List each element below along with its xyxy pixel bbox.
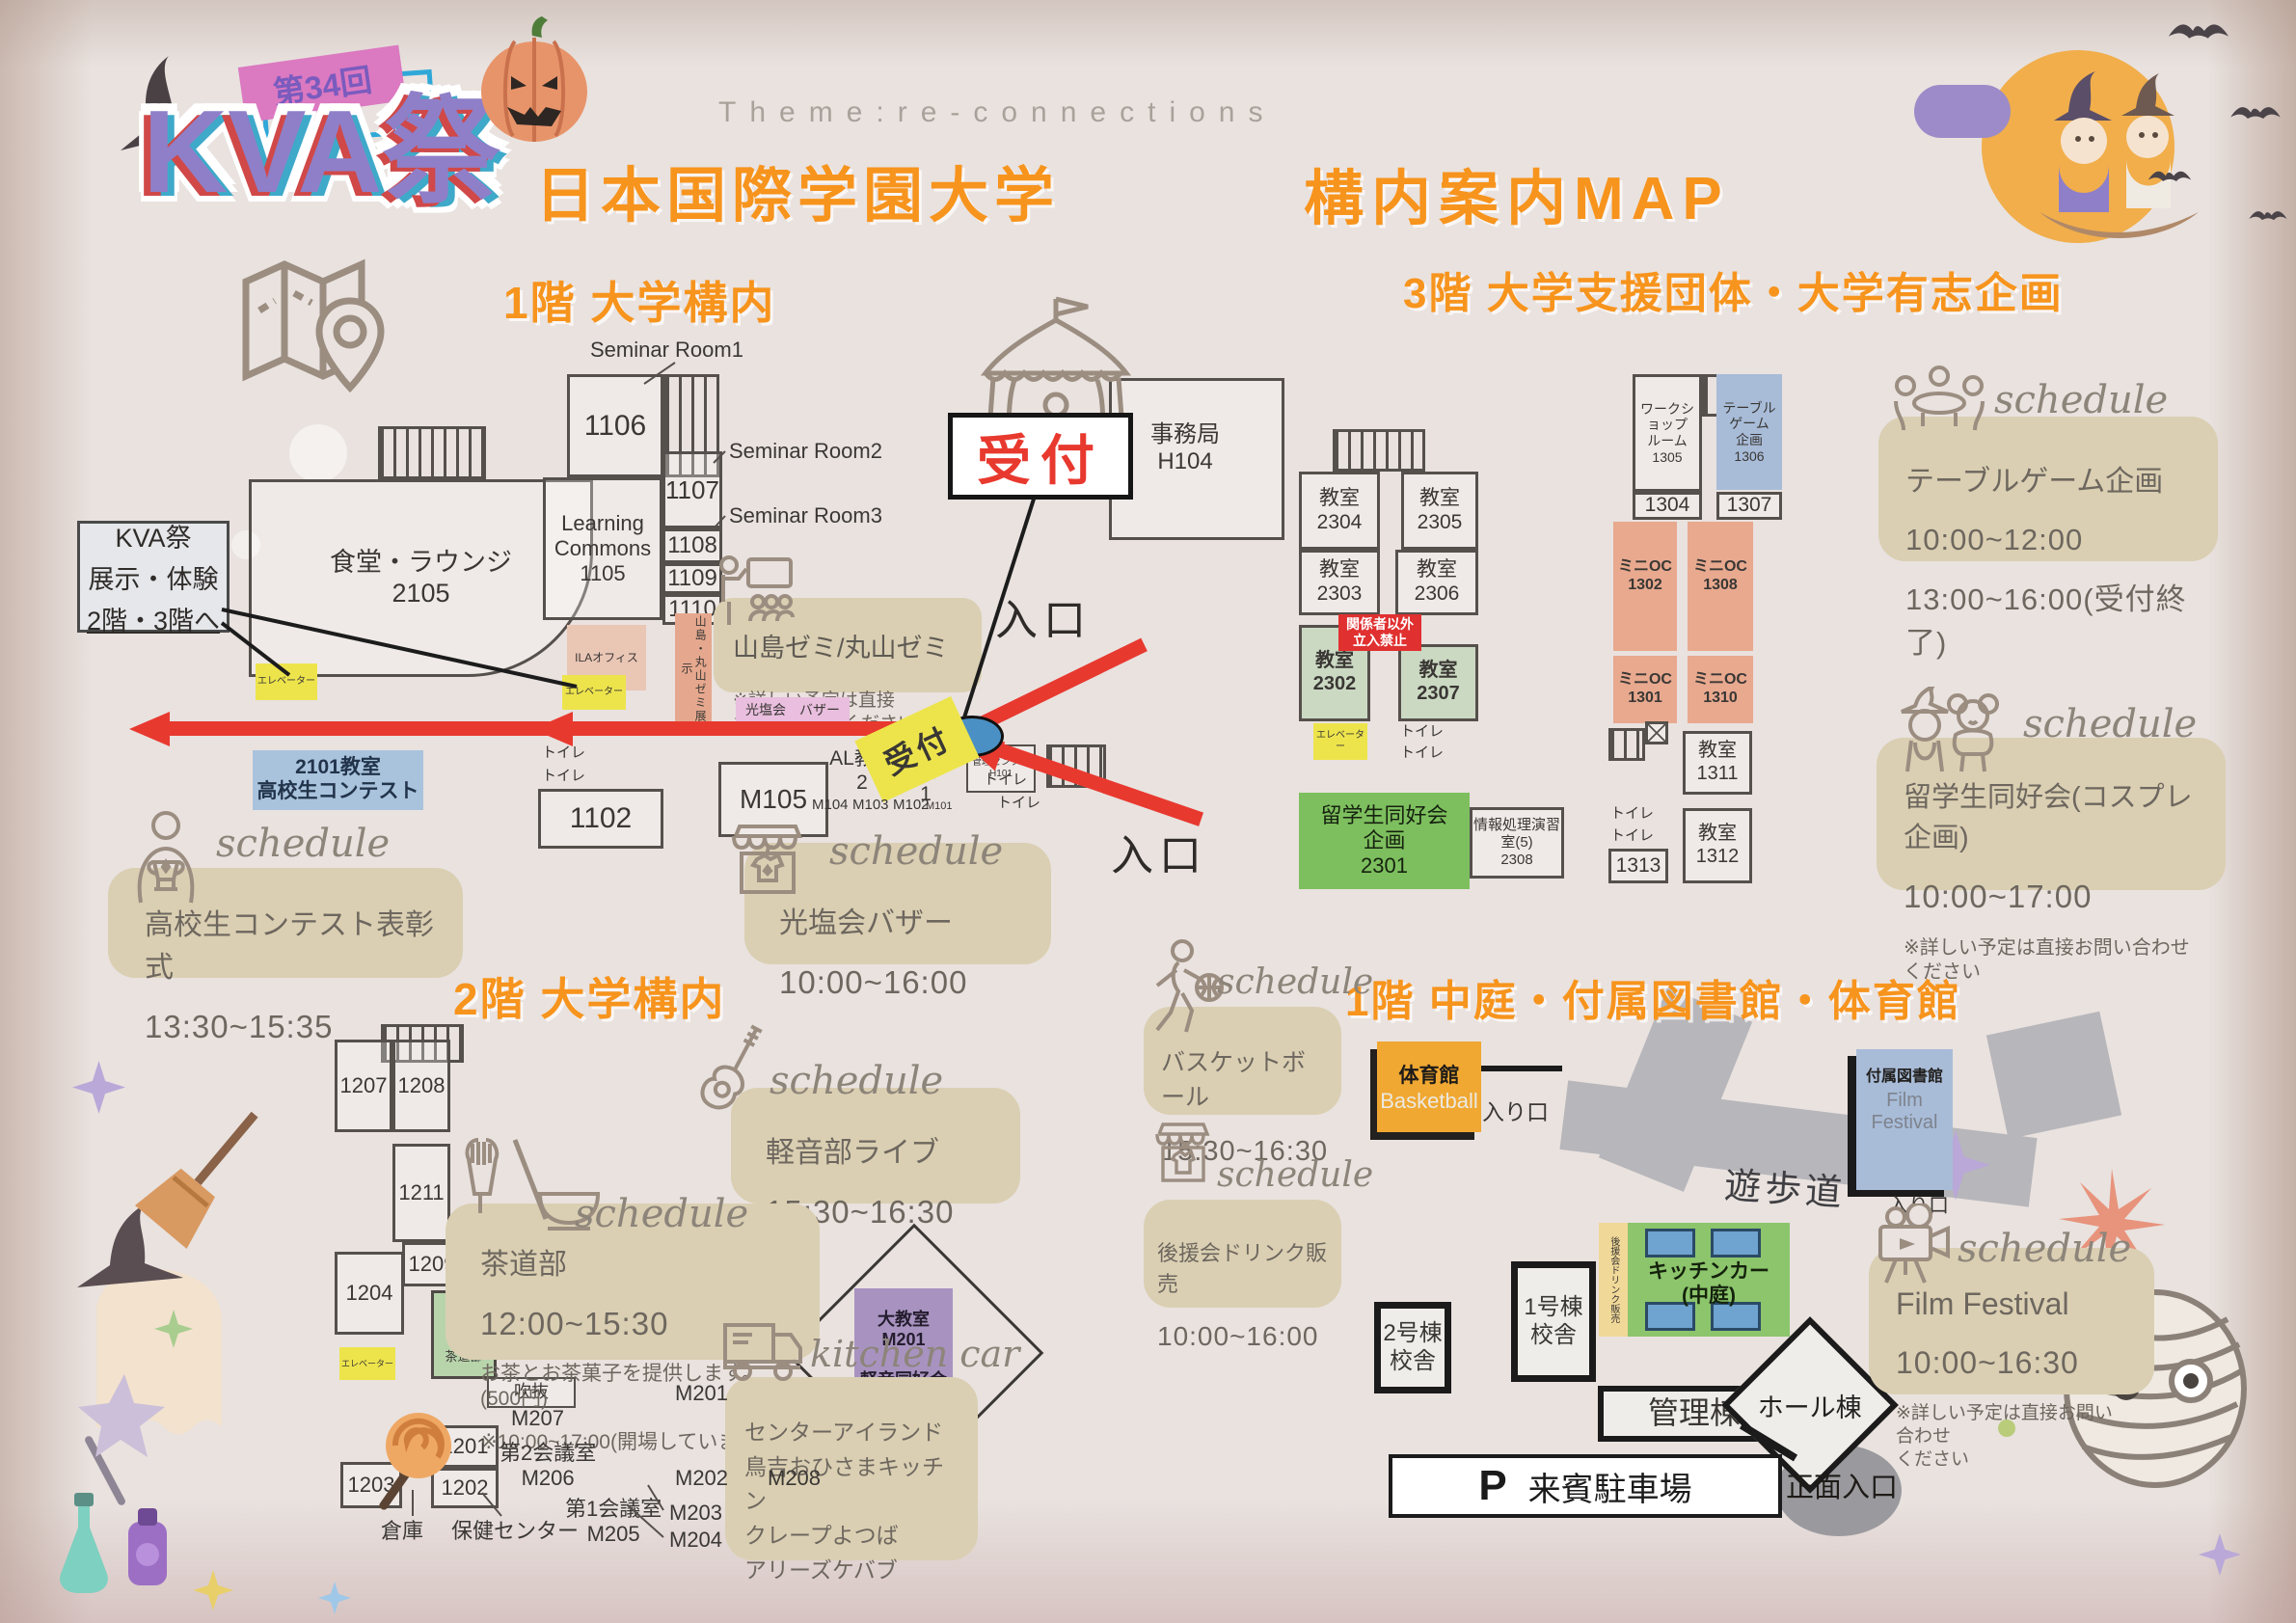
no-entry-sign: 関係者以外 立入禁止	[1338, 614, 1421, 651]
room-m208-label: M208	[768, 1466, 821, 1491]
promenade-path	[1986, 1012, 2121, 1140]
elevator-box: エレベーター	[562, 675, 626, 710]
floor1-title: 1階 大学構内	[503, 268, 775, 332]
parking-label: 来賓駐車場	[1528, 1463, 1692, 1510]
stairwell	[1333, 429, 1425, 472]
room-1211: 1211	[392, 1144, 450, 1242]
schedule-word: schedule	[829, 829, 1003, 874]
schedule-time: 10:00~16:00	[1157, 1321, 1328, 1352]
gym-label-en: Basketball	[1380, 1089, 1478, 1114]
schedule-word: schedule	[575, 1192, 748, 1236]
callout-line: KVA祭	[115, 517, 191, 555]
kitchen-table	[1711, 1229, 1761, 1258]
room-mini-oc-1308: ミニOC 1308	[1688, 522, 1753, 651]
room-ryugaku-2301: 留学生同好会 企画 2301	[1299, 793, 1470, 889]
room-workshop-1305: ワークショップ ルーム 1305	[1633, 374, 1702, 492]
schedule-title: Film Festival	[1896, 1286, 2127, 1322]
campus-map-title: 構内案内MAP	[1304, 149, 1730, 236]
schedule-title: 軽音部ライブ	[766, 1128, 993, 1171]
souko-label: 倉庫	[381, 1519, 423, 1544]
room-mini-oc-1310: ミニOC 1310	[1688, 656, 1753, 723]
room-1312: 教室 1312	[1683, 808, 1752, 883]
hoken-label: 保健センター	[451, 1519, 579, 1544]
library-label: 付属図書館	[1866, 1063, 1943, 1086]
front-entrance-label: 正面入口	[1786, 1472, 1898, 1505]
callout-line: 展示・体験	[89, 558, 219, 596]
zemi-note-title: 山島ゼミ/丸山ゼミ	[733, 627, 962, 664]
toilet-label: トイレ	[1610, 805, 1654, 823]
schedule-time: 10:00~16:30	[1896, 1345, 2127, 1381]
room-1102: 1102	[538, 789, 663, 849]
room-learning-commons: Learning Commons 1105	[543, 477, 662, 620]
schedule-time: 13:00~16:00(受付終了)	[1905, 575, 2191, 662]
room-m202-label: M202	[675, 1466, 728, 1491]
building1-box: 1号棟 校舎	[1511, 1261, 1596, 1382]
schedule-time: 10:00~17:00	[1904, 879, 2199, 915]
parking-box: P 来賓駐車場	[1389, 1454, 1782, 1518]
schedule-note: ※詳しい予定は直接お問い合わせ ください	[1896, 1402, 2127, 1471]
schedule-card-kitchen-car: センターアイランド 鳥吉おひさまキッチン クレープよつば アリーズケバブ	[725, 1377, 978, 1560]
parking-p: P	[1478, 1462, 1506, 1510]
floor3-title: 3階 大学支援団体・大学有志企画	[1403, 258, 2064, 320]
room-m203-label: M203	[669, 1501, 722, 1526]
route-arrow-diagonal	[975, 638, 1148, 733]
bazaar-stall-icon	[728, 815, 807, 900]
schedule-card-tablegame: テーブルゲーム企画 10:00~12:00 13:00~16:00(受付終了)	[1878, 417, 2218, 561]
entrance-label: 入り口	[1482, 1099, 1549, 1126]
campus-map-icon	[227, 243, 415, 436]
bat-icon	[2228, 96, 2283, 125]
star-decoration	[318, 1582, 351, 1614]
room-2304: 教室 2304	[1299, 472, 1380, 550]
room-2307: 教室 2307	[1398, 644, 1478, 721]
drink-sale-strip: 後援会ドリンク販売	[1599, 1223, 1628, 1337]
cosplay-icon	[1888, 687, 2013, 773]
room-m102-label: M102	[893, 797, 930, 814]
room-1204: 1204	[335, 1252, 404, 1335]
drink-stall-icon	[1153, 1117, 1213, 1196]
university-title: 日本国際学園大学	[535, 147, 1060, 233]
kva-exhibit-callout: KVA祭 展示・体験 2階・3階へ	[77, 521, 230, 633]
schedule-time: 10:00~16:00	[779, 964, 1024, 1001]
gym-label: 体育館	[1399, 1060, 1460, 1089]
schedule-word: schedule	[1217, 962, 1373, 1002]
room-m103-label: M103	[852, 797, 889, 814]
broom-decoration	[125, 1090, 289, 1254]
room-contest: 2101教室 高校生コンテスト	[253, 750, 423, 810]
elevator-shaft	[1645, 721, 1668, 744]
room-2303: 教室 2303	[1299, 550, 1380, 615]
entrance-top-label: 入口	[995, 596, 1092, 647]
festival-theme: Theme:re-connections	[718, 96, 1276, 129]
schedule-word: schedule	[216, 822, 390, 866]
seminar-room3-label: Seminar Room3	[729, 503, 882, 528]
room-m206-label: 第2会議室 M206	[500, 1441, 596, 1492]
room-m207-label: M207	[511, 1406, 564, 1431]
potion-bottles-decoration	[43, 1485, 188, 1610]
elevator-box: エレベーター	[339, 1347, 395, 1380]
toilet-label: トイレ	[1400, 723, 1444, 741]
schedule-title: バスケットボール	[1161, 1043, 1324, 1113]
schedule-word: schedule	[1958, 1227, 2131, 1271]
festival-logo: KVA祭	[143, 87, 500, 216]
toilet-label: トイレ	[997, 795, 1040, 812]
toilet-label: トイレ	[1400, 744, 1444, 762]
room-2306: 教室 2306	[1395, 550, 1478, 615]
library-box: 付属図書館 Film Festival	[1856, 1049, 1953, 1190]
entrance-bottom-label: 入口	[1111, 831, 1207, 882]
building2-box: 2号棟 校舎	[1374, 1302, 1451, 1393]
seminar-room2-label: Seminar Room2	[729, 439, 882, 464]
route-arrowhead	[129, 712, 170, 746]
bat-icon	[2247, 203, 2289, 226]
route-arrowhead	[532, 712, 573, 746]
star-decoration	[193, 1570, 233, 1610]
room-1106: 1106	[567, 374, 663, 477]
kitchen-car-area: キッチンカー (中庭)	[1628, 1223, 1790, 1337]
bazaar-strip: 光塩会 バザー	[736, 697, 850, 723]
schedule-word: schedule	[770, 1059, 943, 1103]
room-m205-label: 第1会議室 M205	[565, 1497, 662, 1548]
promenade-label: 遊歩道	[1723, 1165, 1848, 1217]
courtyard-title: 1階 中庭・付属図書館・体育館	[1345, 966, 1961, 1028]
pumpkin-icon	[474, 14, 595, 149]
schedule-title: 高校生コンテスト表彰式	[145, 901, 436, 986]
bg-vignette-bottom	[0, 1500, 2296, 1623]
gym-box: 体育館 Basketball	[1377, 1041, 1481, 1132]
room-1311: 教室 1311	[1683, 731, 1752, 795]
library-label-en: Film Festival	[1872, 1090, 1938, 1134]
kitchen-car-word: kitchen car	[810, 1333, 1019, 1375]
schedule-title: テーブルゲーム企画	[1905, 457, 2191, 500]
toilet-label: トイレ	[542, 768, 585, 785]
seminar-room1-label: Seminar Room1	[590, 338, 743, 363]
schedule-title: 光塩会バザー	[779, 899, 1024, 941]
room-1107: 1107	[662, 451, 722, 528]
film-camera-icon	[1869, 1204, 1958, 1286]
room-tablegame-1306: テーブル ゲーム 企画 1306	[1716, 374, 1782, 490]
room-m204-label: M204	[669, 1528, 722, 1553]
kitchen-table	[1645, 1229, 1695, 1258]
room-m101-label: M101	[926, 800, 953, 813]
schedule-time: 13:30~15:35	[145, 1009, 436, 1045]
room-mini-oc-1302: ミニOC 1302	[1613, 522, 1677, 651]
schedule-card-band: 軽音部ライブ 15:30~16:30	[731, 1088, 1020, 1204]
toilet-label: トイレ	[984, 771, 1027, 789]
schedule-word: schedule	[1994, 378, 2168, 422]
lollipop-decoration	[365, 1403, 461, 1519]
bat-icon	[2146, 162, 2194, 187]
room-2305: 教室 2305	[1401, 472, 1478, 550]
room-joho-2308: 情報処理演習室(5) 2308	[1470, 807, 1564, 879]
room-1307: 1307	[1716, 492, 1782, 520]
callout-line: 2階・3階へ	[87, 600, 220, 637]
room-mini-oc-1301: ミニOC 1301	[1613, 656, 1677, 723]
schedule-title: 後援会ドリンク販売	[1157, 1236, 1328, 1298]
floor2-title: 2階 大学構内	[453, 964, 725, 1028]
bat-icon	[2165, 12, 2232, 46]
room-m104-label: M104	[812, 797, 849, 814]
tablegame-icon	[1886, 365, 1992, 434]
toilet-label: トイレ	[542, 744, 585, 762]
witch-characters-decoration	[2001, 68, 2213, 251]
room-1313: 1313	[1608, 849, 1668, 883]
lecture-icon	[714, 552, 796, 631]
guitar-icon	[696, 1017, 769, 1128]
kitchen-car-label: キッチンカー (中庭)	[1628, 1259, 1790, 1308]
reception-sign: 受付	[948, 413, 1133, 500]
award-icon	[118, 806, 214, 906]
room-cafeteria: 食堂・ラウンジ 2105	[249, 479, 593, 677]
elevator-box: エレベーター	[256, 663, 317, 700]
stairwell	[1608, 728, 1645, 761]
reception-sign-label: 受付	[977, 418, 1104, 496]
schedule-title: 留学生同好会(コスプレ企画)	[1904, 774, 2199, 855]
cloud-decoration	[1914, 85, 2011, 138]
star-decoration	[2199, 1533, 2241, 1576]
star-decoration	[72, 1061, 125, 1114]
toilet-label: トイレ	[1610, 827, 1654, 845]
schedule-card-drink: 後援会ドリンク販売 10:00~16:00	[1144, 1200, 1341, 1308]
room-zemi-exhibit-strip: 山島・丸山ゼミ展示	[675, 613, 712, 725]
schedule-word: schedule	[1217, 1155, 1373, 1195]
kitchen-truck-icon	[719, 1313, 804, 1385]
kitchen-car-items: センターアイランド 鳥吉おひさまキッチン クレープよつば アリーズケバブ	[744, 1416, 959, 1587]
schedule-word: schedule	[2023, 702, 2197, 746]
elevator-box: エレベーター	[1313, 723, 1367, 760]
hall-label: ホール棟	[1758, 1387, 1862, 1424]
schedule-time: 10:00~12:00	[1905, 523, 2191, 557]
room-1304: 1304	[1633, 492, 1702, 520]
